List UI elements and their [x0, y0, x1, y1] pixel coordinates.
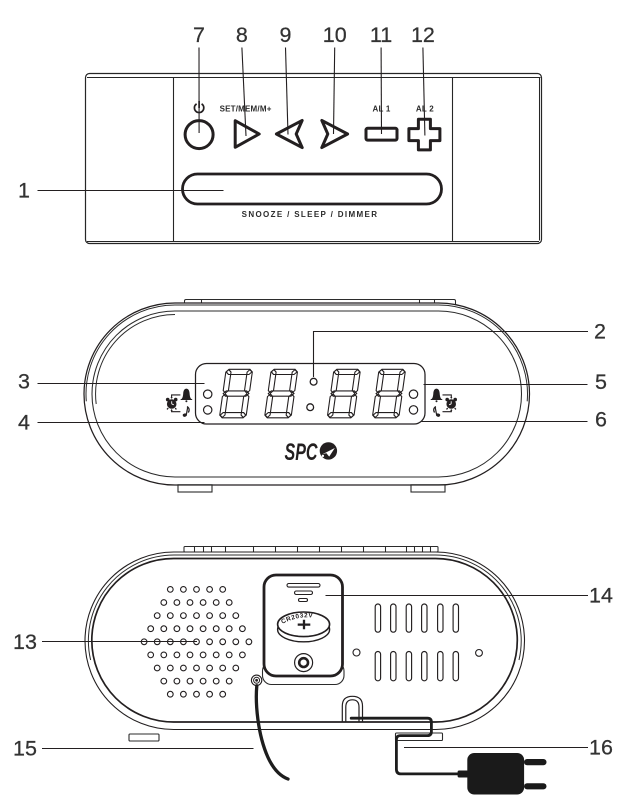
svg-text:11: 11: [370, 23, 392, 47]
svg-text:1: 1: [18, 179, 30, 203]
svg-text:14: 14: [589, 584, 613, 608]
svg-text:9: 9: [280, 23, 292, 47]
svg-text:6: 6: [595, 407, 607, 431]
svg-text:7: 7: [193, 23, 205, 47]
svg-text:AL 2: AL 2: [416, 105, 434, 114]
svg-text:15: 15: [13, 736, 37, 760]
svg-text:5: 5: [595, 370, 607, 394]
svg-text:SNOOZE / SLEEP / DIMMER: SNOOZE / SLEEP / DIMMER: [242, 210, 379, 219]
svg-text:4: 4: [18, 411, 30, 435]
svg-text:16: 16: [589, 736, 613, 760]
svg-text:8: 8: [236, 23, 248, 47]
svg-text:13: 13: [13, 630, 37, 654]
svg-text:SPC: SPC: [285, 440, 318, 466]
svg-text:12: 12: [411, 23, 435, 47]
svg-text:2: 2: [594, 320, 606, 344]
svg-text:10: 10: [323, 23, 347, 47]
svg-text:3: 3: [18, 369, 30, 393]
svg-text:SET/MEM/M+: SET/MEM/M+: [220, 105, 272, 114]
